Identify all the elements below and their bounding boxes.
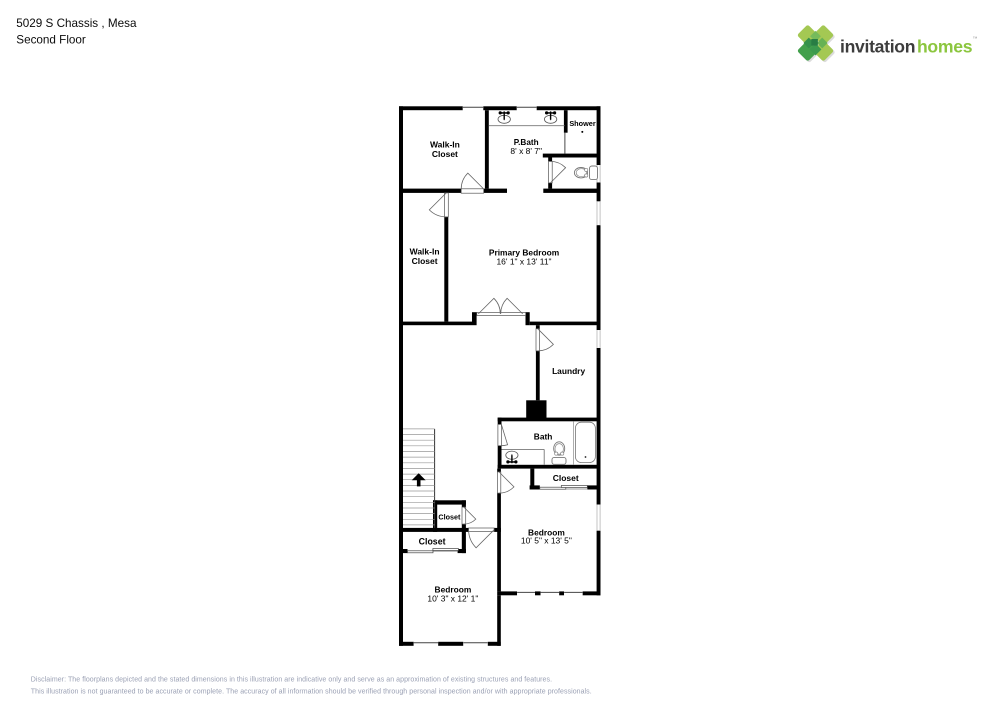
svg-text:Closet: Closet	[412, 256, 438, 266]
svg-text:Second Floor: Second Floor	[16, 33, 86, 46]
svg-text:Disclaimer: The floorplans dep: Disclaimer: The floorplans depicted and …	[31, 676, 552, 683]
svg-text:invitation homes: invitation homes	[840, 37, 973, 57]
svg-text:Walk-In: Walk-In	[410, 247, 440, 257]
svg-text:Closet: Closet	[553, 473, 579, 483]
svg-text:Closet: Closet	[432, 149, 458, 159]
svg-text:Bath: Bath	[534, 432, 553, 442]
svg-text:This illustration is not guara: This illustration is not guaranteed to b…	[31, 688, 592, 695]
svg-text:Closet: Closet	[438, 513, 461, 522]
svg-text:Shower: Shower	[569, 119, 596, 128]
svg-text:8' x 8' 7": 8' x 8' 7"	[510, 146, 542, 156]
svg-text:Laundry: Laundry	[552, 366, 585, 376]
svg-text:5029 S Chassis , Mesa: 5029 S Chassis , Mesa	[16, 17, 137, 30]
svg-text:™: ™	[973, 36, 978, 42]
svg-text:Closet: Closet	[419, 536, 446, 546]
svg-text:Walk-In: Walk-In	[430, 140, 460, 150]
svg-text:16' 1" x 13' 11": 16' 1" x 13' 11"	[496, 257, 551, 267]
svg-text:10' 5" x 13' 5": 10' 5" x 13' 5"	[521, 536, 572, 546]
svg-text:10' 3" x 12' 1": 10' 3" x 12' 1"	[427, 593, 478, 603]
